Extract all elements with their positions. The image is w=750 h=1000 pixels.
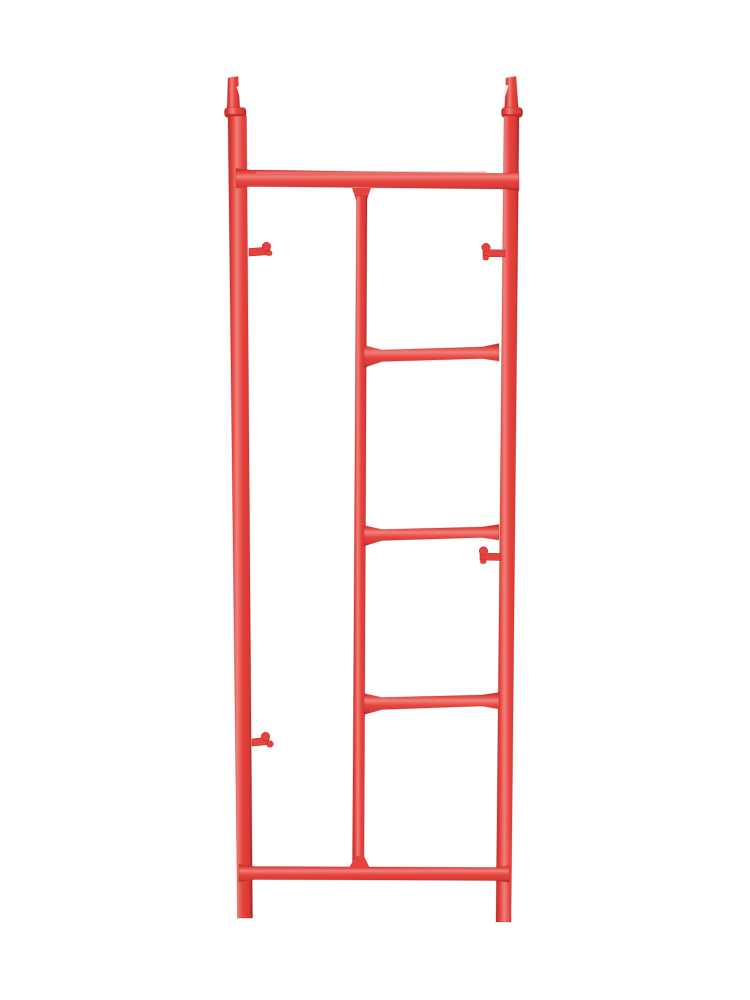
product-photo [0, 0, 750, 1000]
top-bar [236, 169, 519, 191]
bottom-bar [239, 865, 509, 883]
scaffold-frame-illustration [0, 0, 750, 1000]
photo-background [0, 0, 750, 1000]
